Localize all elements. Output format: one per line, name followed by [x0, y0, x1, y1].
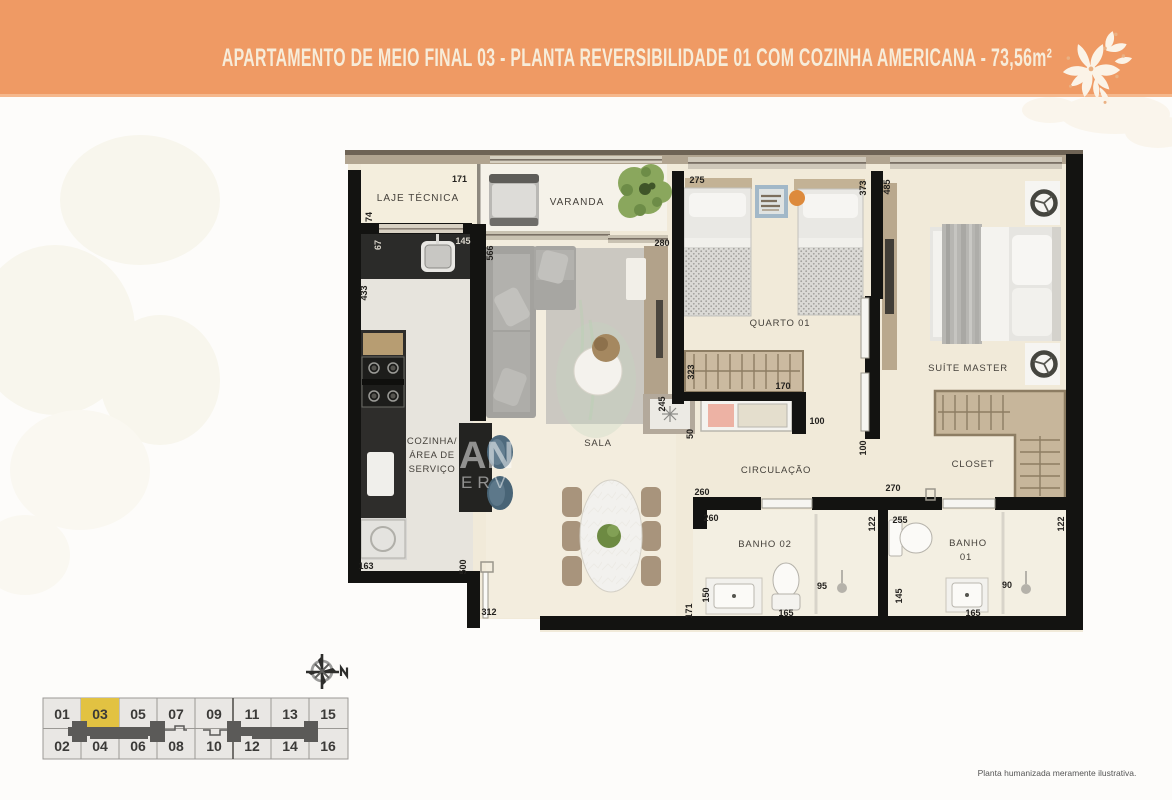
- svg-text:LAJE TÉCNICA: LAJE TÉCNICA: [377, 191, 459, 204]
- svg-text:SERVIÇO: SERVIÇO: [409, 464, 456, 475]
- svg-text:280: 280: [654, 238, 669, 248]
- svg-text:14: 14: [282, 738, 298, 754]
- svg-text:15: 15: [320, 706, 336, 722]
- svg-text:01: 01: [960, 552, 972, 563]
- svg-text:260: 260: [703, 513, 718, 523]
- svg-text:122: 122: [867, 516, 877, 531]
- svg-text:433: 433: [359, 285, 369, 300]
- svg-text:100: 100: [858, 440, 868, 455]
- svg-text:485: 485: [882, 179, 892, 194]
- svg-text:05: 05: [130, 706, 146, 722]
- svg-text:255: 255: [892, 515, 907, 525]
- svg-text:165: 165: [778, 608, 793, 618]
- svg-text:COZINHA/: COZINHA/: [407, 436, 457, 447]
- svg-text:90: 90: [1002, 580, 1012, 590]
- svg-text:275: 275: [689, 175, 704, 185]
- svg-text:95: 95: [817, 581, 827, 591]
- svg-text:CLOSET: CLOSET: [952, 459, 995, 470]
- svg-text:122: 122: [1056, 516, 1066, 531]
- svg-text:67: 67: [373, 240, 383, 250]
- svg-text:373: 373: [858, 180, 868, 195]
- svg-text:13: 13: [282, 706, 298, 722]
- svg-text:500: 500: [458, 559, 468, 574]
- svg-text:323: 323: [686, 364, 696, 379]
- svg-text:ERV: ERV: [461, 473, 511, 492]
- svg-text:VARANDA: VARANDA: [550, 197, 605, 208]
- svg-text:74: 74: [364, 212, 374, 222]
- svg-text:50: 50: [685, 429, 695, 439]
- svg-text:SUÍTE MASTER: SUÍTE MASTER: [928, 363, 1008, 374]
- svg-text:BANHO: BANHO: [949, 538, 987, 549]
- svg-text:03: 03: [92, 706, 108, 722]
- svg-text:245: 245: [657, 396, 667, 411]
- svg-text:270: 270: [885, 483, 900, 493]
- svg-text:163: 163: [358, 561, 373, 571]
- svg-text:Planta humanizada meramente il: Planta humanizada meramente ilustrativa.: [978, 768, 1137, 778]
- svg-text:312: 312: [481, 607, 496, 617]
- svg-text:171: 171: [452, 174, 467, 184]
- svg-text:165: 165: [965, 608, 980, 618]
- svg-text:12: 12: [244, 738, 260, 754]
- svg-text:01: 01: [54, 706, 70, 722]
- svg-text:100: 100: [809, 416, 824, 426]
- svg-text:SALA: SALA: [584, 438, 612, 449]
- svg-text:07: 07: [168, 706, 184, 722]
- svg-text:10: 10: [206, 738, 222, 754]
- svg-text:APARTAMENTO DE MEIO FINAL 03 -: APARTAMENTO DE MEIO FINAL 03 - PLANTA RE…: [222, 45, 1052, 72]
- svg-text:566: 566: [485, 245, 495, 260]
- svg-text:09: 09: [206, 706, 222, 722]
- svg-text:171: 171: [684, 603, 694, 618]
- svg-text:145: 145: [455, 236, 470, 246]
- svg-text:CIRCULAÇÃO: CIRCULAÇÃO: [741, 465, 811, 476]
- svg-text:04: 04: [92, 738, 108, 754]
- svg-text:02: 02: [54, 738, 70, 754]
- svg-text:11: 11: [245, 706, 260, 722]
- svg-text:16: 16: [320, 738, 336, 754]
- svg-text:170: 170: [775, 381, 790, 391]
- svg-text:QUARTO 01: QUARTO 01: [750, 318, 811, 329]
- svg-text:BANHO 02: BANHO 02: [738, 539, 791, 550]
- svg-text:06: 06: [130, 738, 146, 754]
- svg-text:ÁREA DE: ÁREA DE: [409, 450, 454, 461]
- svg-text:145: 145: [894, 588, 904, 603]
- svg-text:AN: AN: [459, 435, 514, 477]
- svg-text:150: 150: [701, 587, 711, 602]
- svg-text:260: 260: [694, 487, 709, 497]
- svg-text:08: 08: [168, 738, 184, 754]
